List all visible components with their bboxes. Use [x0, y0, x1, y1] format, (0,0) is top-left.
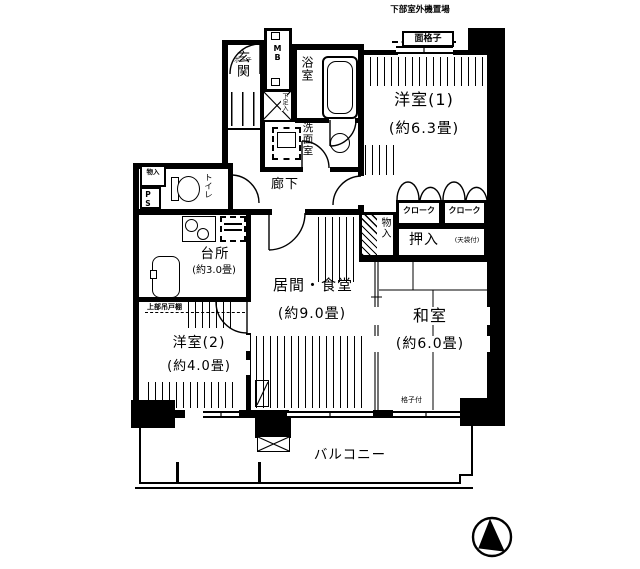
stove-burner: [197, 228, 209, 240]
meter-box-cell: [271, 32, 280, 40]
wall: [228, 163, 233, 215]
oshiire-note: (天袋付): [447, 237, 487, 244]
toilet-icon: [177, 176, 200, 202]
escape-hatch-icon: [257, 436, 290, 452]
room-label-balcony: バルコニー: [300, 448, 400, 464]
window-living-balcony: [287, 411, 373, 418]
entrance-step-line: [228, 128, 260, 130]
western2-floor-hatch: [188, 301, 232, 328]
upper-shelf-note: 上部吊戸棚: [146, 303, 183, 311]
wall-right: [487, 50, 505, 406]
room-label-western1: 洋室(1): [364, 91, 484, 109]
room-size-kitchen: (約3.0畳): [178, 265, 250, 277]
lattice-note: 格子付: [400, 396, 423, 404]
floorplan-canvas: 下部室外機置場 面格子 洋室(1) (約6.3畳) クローク クローク 押入 (…: [0, 0, 640, 569]
wall: [222, 40, 228, 165]
folding-door-cloak1: [397, 182, 441, 200]
western1-floor-hatch: [370, 57, 484, 86]
room-size-living: (約9.0畳): [253, 306, 371, 322]
wall: [358, 44, 364, 176]
meter-box-cell: [271, 78, 280, 86]
washbasin-icon: [330, 133, 350, 153]
western2-floor-hatch: [148, 382, 234, 408]
sink-faucet: [150, 270, 157, 279]
refrigerator-shelf: [224, 223, 242, 225]
wall: [373, 410, 393, 418]
room-label-hallway: 廊下: [262, 178, 308, 193]
balcony-partition: [176, 462, 179, 482]
small-storage-label: 物入: [141, 169, 165, 176]
shoe-box-label: 下足入: [281, 93, 287, 111]
balcony-edge-bottom: [139, 482, 461, 484]
wall: [292, 44, 364, 50]
room-size-western2: (約4.0畳): [148, 360, 250, 375]
meter-box-label: MB: [273, 44, 281, 62]
window-japanese-balcony: [393, 411, 460, 418]
grille-label: 面格子: [402, 34, 454, 44]
room-label-entrance: 玄関: [235, 50, 248, 78]
door-arc-living: [269, 213, 305, 250]
balcony-rail-outer: [135, 487, 473, 489]
wall-block-balcony-mid: [255, 418, 291, 438]
bathtub-inner: [327, 61, 353, 114]
cloak1-label: クローク: [397, 206, 441, 215]
wall: [139, 410, 185, 418]
door-arc-toilet: [231, 175, 259, 203]
balcony-edge-left: [139, 418, 141, 484]
wall: [262, 167, 303, 172]
room-label-toilet: トイレ: [203, 173, 212, 199]
upper-shelf-dash-line: [145, 312, 245, 313]
top-exterior-note: 下部室外機置場: [370, 6, 470, 16]
entrance-floor-hatch: [231, 92, 261, 126]
living-floor-hatch: [256, 336, 364, 408]
room-label-bath: 浴室: [301, 56, 313, 82]
wall: [133, 300, 139, 402]
hall-storage-door-hatch: [362, 215, 377, 255]
room-size-western1: (約6.3畳): [364, 121, 484, 138]
wall: [239, 410, 289, 418]
stove-burner: [185, 219, 198, 232]
balcony-edge-right: [471, 418, 473, 476]
balcony-partition: [258, 462, 261, 482]
window-western1-top: [396, 46, 453, 54]
pipe-space-label: PS: [144, 190, 152, 208]
room-label-japanese: 和室: [370, 307, 490, 325]
hall-storage-label: 物入: [379, 217, 389, 239]
room-label-kitchen: 台所: [184, 247, 246, 263]
wall: [305, 209, 358, 215]
refrigerator-shelf: [224, 229, 242, 231]
shoe-box: [262, 90, 293, 122]
room-label-living: 居間・食堂: [253, 277, 373, 294]
wall: [358, 50, 398, 55]
wall: [246, 215, 251, 302]
room-label-western2: 洋室(2): [148, 335, 250, 351]
wall: [133, 163, 139, 303]
room-label-washroom: 洗面室: [302, 122, 313, 157]
western1-floor-hatch: [365, 145, 396, 175]
wall-block-bottom-right: [460, 398, 505, 426]
door-arc-western1: [333, 176, 361, 205]
wall: [330, 167, 360, 172]
oshiire-label: 押入: [399, 232, 449, 248]
cloak2-label: クローク: [443, 206, 486, 215]
living-floor-hatch: [318, 217, 360, 282]
wall: [453, 50, 475, 55]
window-western2-balcony: [203, 411, 239, 418]
folding-door-cloak2: [443, 182, 487, 200]
wall: [139, 209, 272, 215]
compass-north-icon: [473, 518, 511, 556]
washing-machine-inner: [277, 132, 296, 148]
room-size-japanese: (約6.0畳): [370, 336, 490, 352]
